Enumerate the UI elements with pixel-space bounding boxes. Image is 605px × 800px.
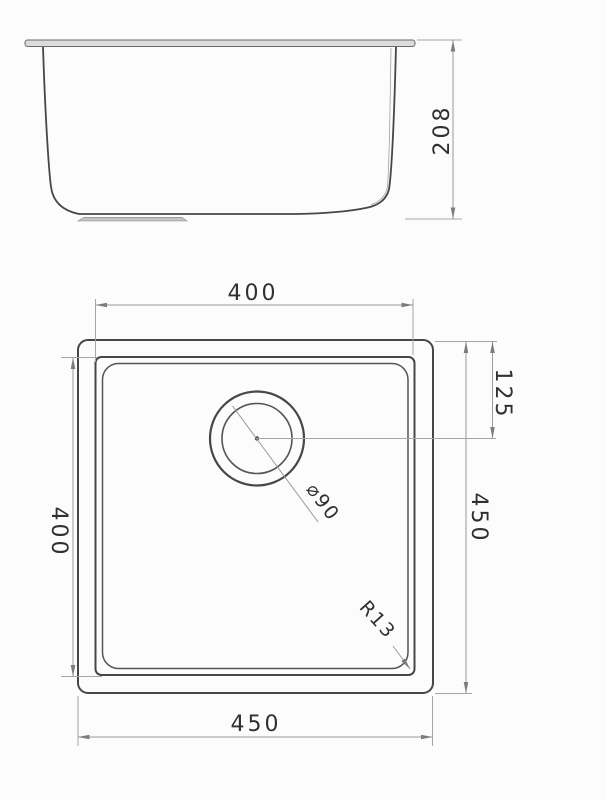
dim-right-label: 450	[466, 493, 491, 544]
bowl-bottom-edge	[103, 364, 409, 669]
drain-pad-strip	[78, 217, 187, 221]
dim-offset-label: 125	[490, 369, 515, 420]
dim-height-label: 208	[430, 105, 455, 156]
drawing-canvas: 208 ⌀90 R13 400	[0, 0, 605, 800]
sink-bowl-profile	[43, 47, 396, 214]
sink-bowl-inner-wall-line	[371, 48, 391, 205]
corner-radius-label: R13	[355, 597, 400, 644]
drain-diameter-leader	[233, 406, 319, 522]
side-section-view: 208	[25, 40, 462, 221]
technical-drawing: 208 ⌀90 R13 400	[0, 0, 605, 800]
sink-outer-edge	[78, 340, 433, 693]
dim-bottom-label: 450	[231, 712, 282, 737]
dim-left-label: 400	[46, 507, 71, 558]
plan-view: ⌀90 R13 400 400 450 125	[46, 281, 515, 746]
drain-diameter-label: ⌀90	[301, 479, 344, 525]
bowl-opening-edge	[96, 357, 415, 675]
sink-rim-flange	[25, 40, 415, 47]
dim-top-label: 400	[228, 281, 279, 306]
